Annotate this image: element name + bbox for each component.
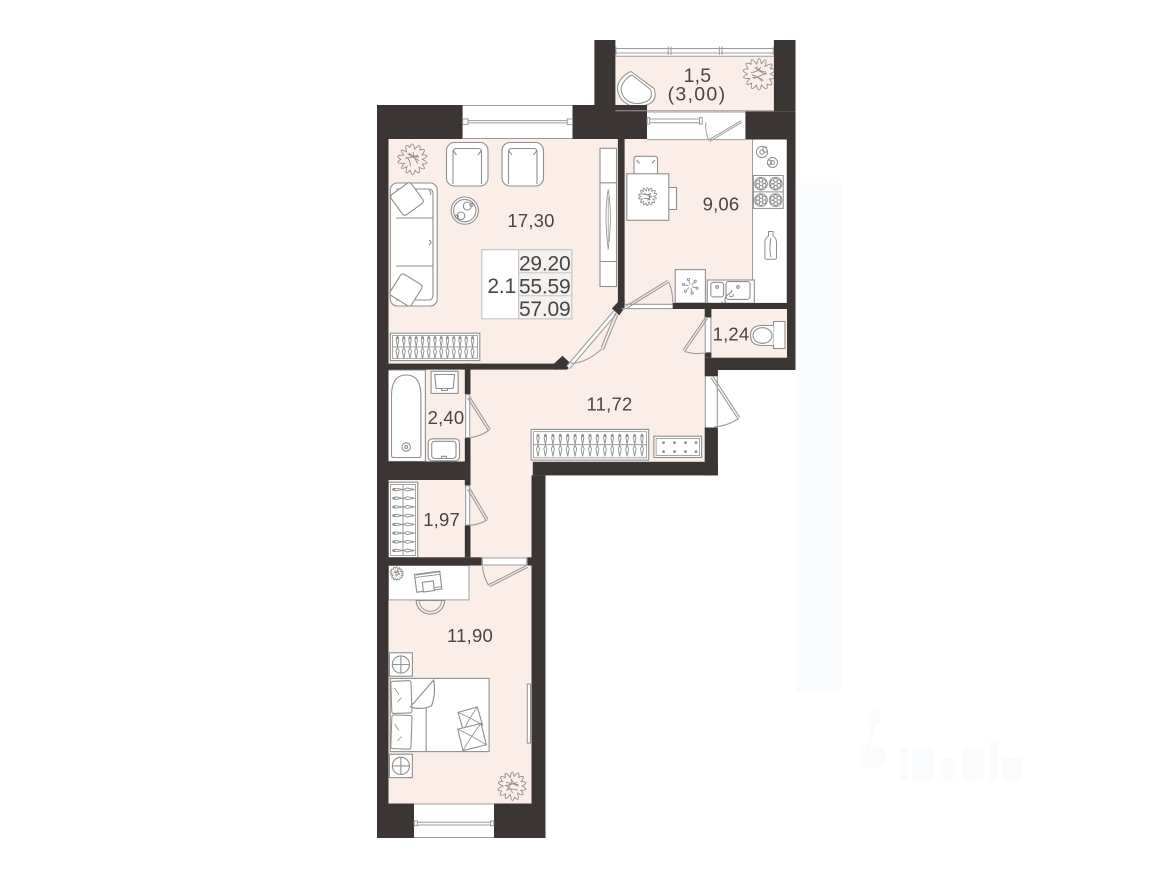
svg-text:29.20: 29.20 [519, 252, 571, 275]
svg-text:57.09: 57.09 [519, 298, 571, 321]
svg-text:55.59: 55.59 [519, 276, 571, 299]
svg-text:2,40: 2,40 [428, 407, 465, 428]
svg-text:1,97: 1,97 [423, 509, 460, 530]
svg-text:9,06: 9,06 [703, 193, 740, 214]
svg-text:11,72: 11,72 [587, 394, 633, 415]
svg-text:17,30: 17,30 [507, 210, 554, 231]
svg-text:11,90: 11,90 [447, 625, 493, 646]
svg-text:(3,00): (3,00) [668, 83, 727, 105]
svg-text:2.1: 2.1 [487, 275, 516, 298]
svg-text:1,24: 1,24 [713, 323, 750, 344]
